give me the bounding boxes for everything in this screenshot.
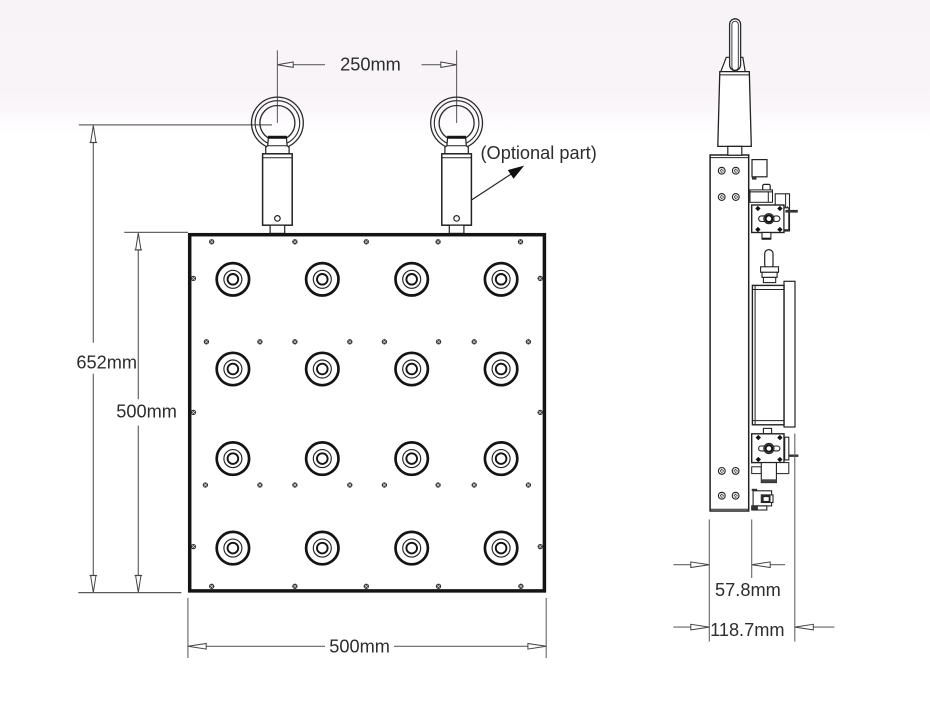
svg-text:500mm: 500mm bbox=[329, 636, 390, 656]
svg-text:(Optional part): (Optional part) bbox=[481, 143, 597, 163]
svg-text:57.8mm: 57.8mm bbox=[715, 580, 781, 600]
svg-text:118.7mm: 118.7mm bbox=[710, 620, 784, 640]
svg-text:250mm: 250mm bbox=[340, 55, 401, 75]
svg-text:652mm: 652mm bbox=[76, 353, 137, 373]
svg-text:500mm: 500mm bbox=[116, 401, 177, 421]
